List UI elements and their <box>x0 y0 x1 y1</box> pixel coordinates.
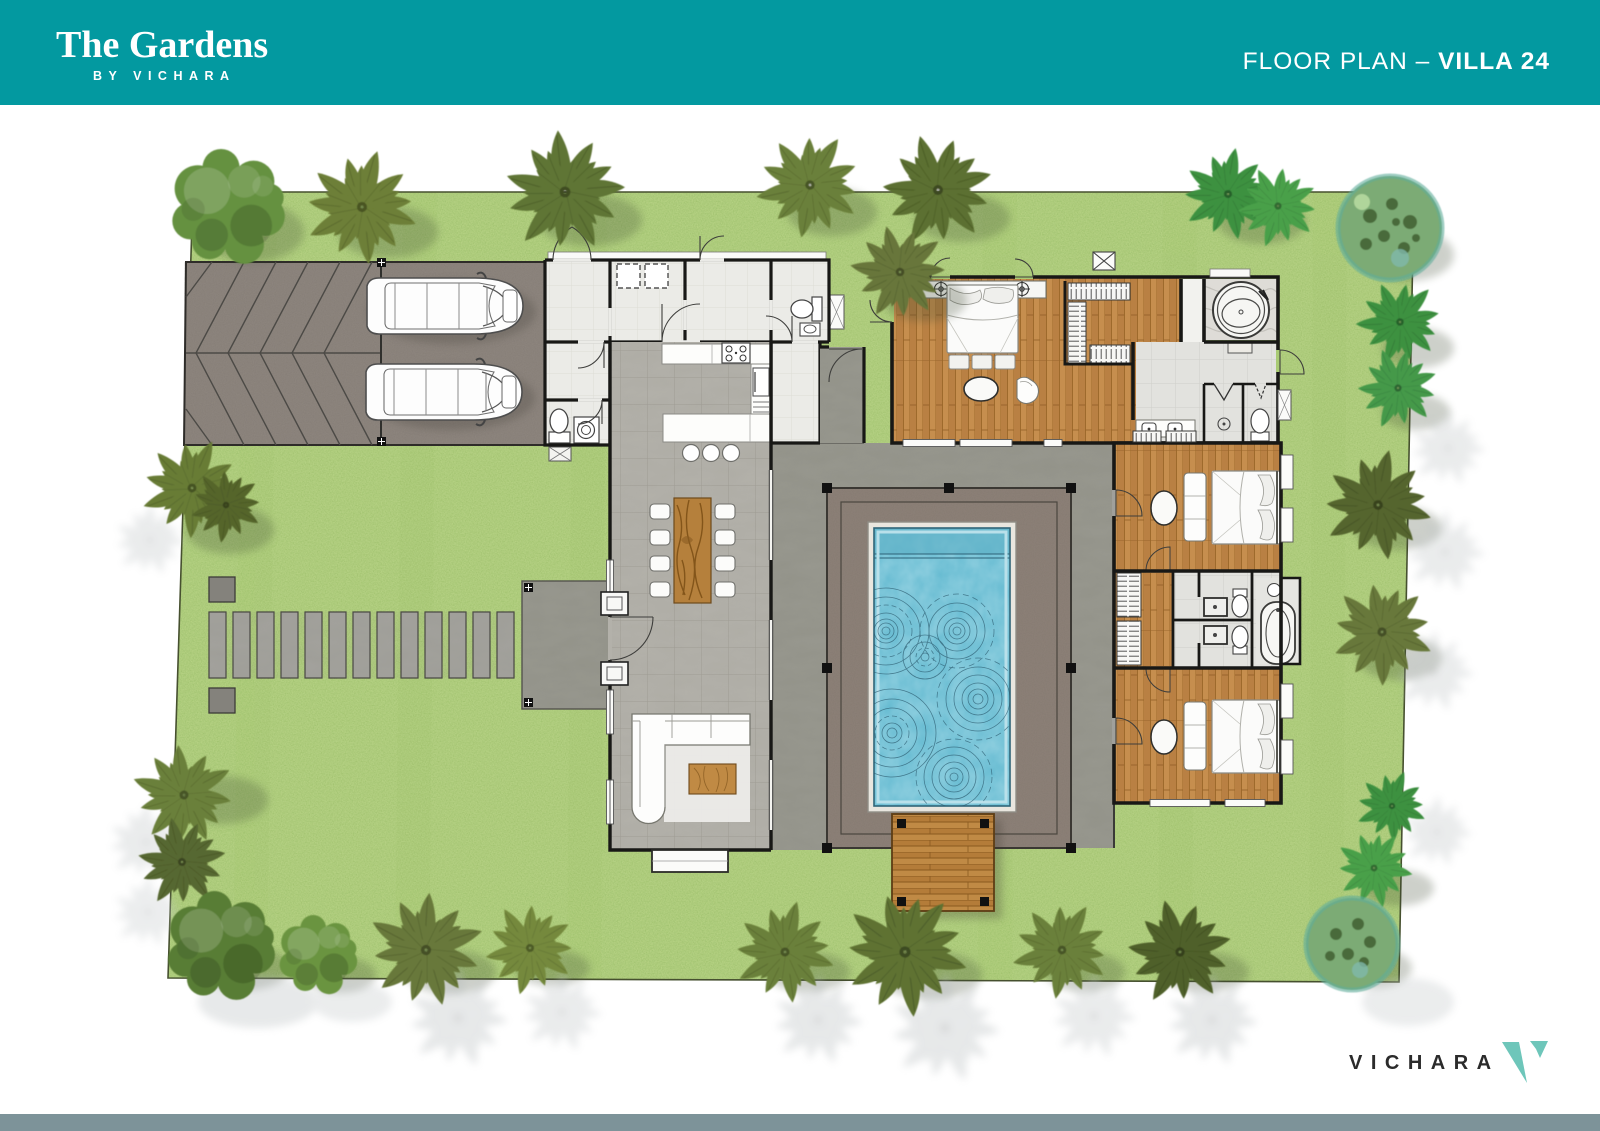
svg-text:FLOOR PLAN – VILLA 24: FLOOR PLAN – VILLA 24 <box>1243 48 1550 75</box>
svg-text:VICHARA: VICHARA <box>1349 1052 1500 1074</box>
svg-text:The Gardens: The Gardens <box>56 24 268 66</box>
svg-text:BY VICHARA: BY VICHARA <box>93 69 236 83</box>
